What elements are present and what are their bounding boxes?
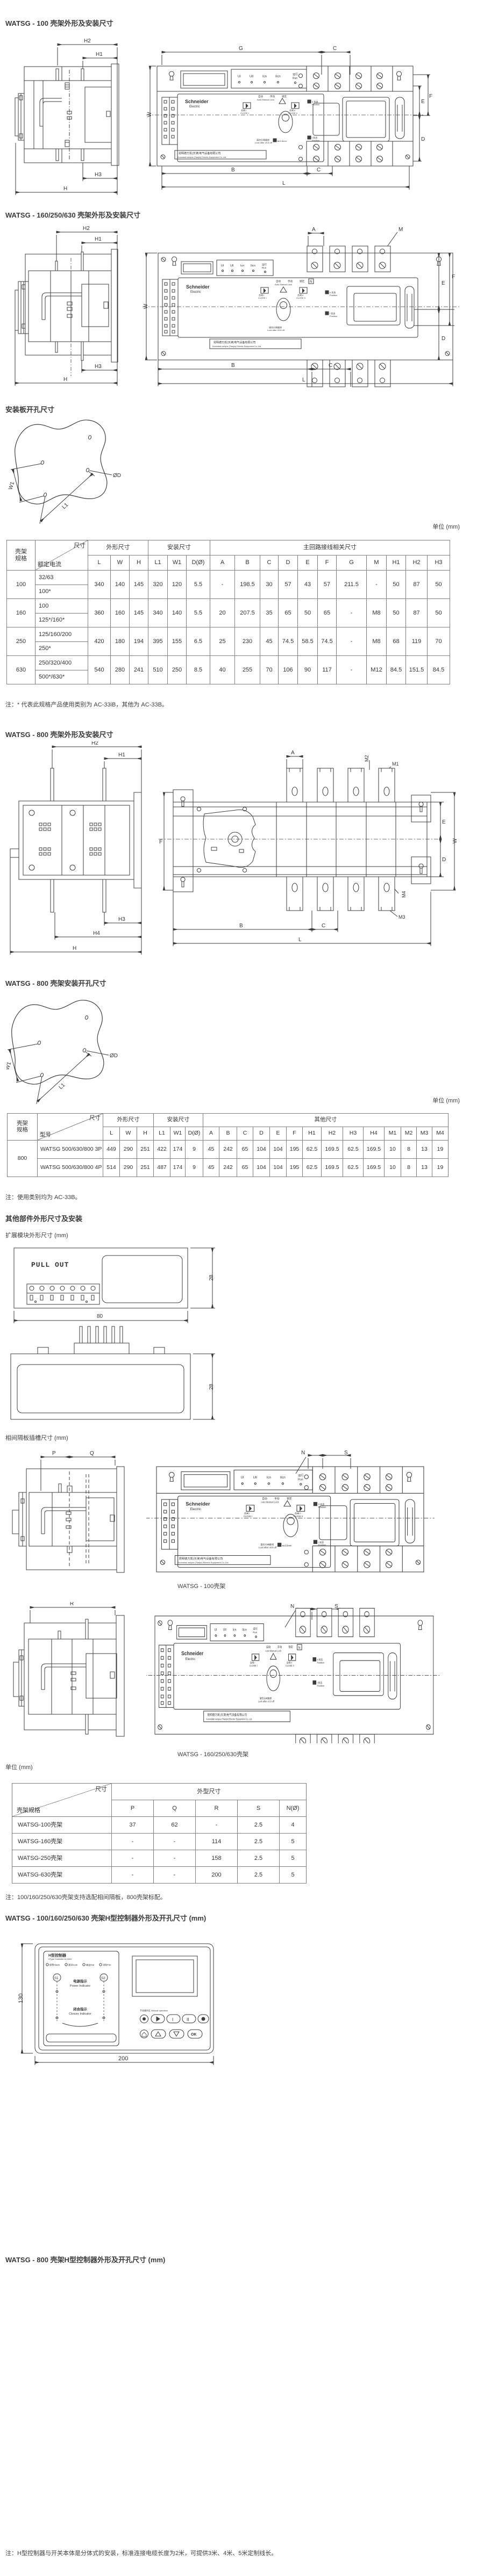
svg-text:L: L (302, 377, 305, 383)
svg-text:C: C (322, 923, 325, 929)
svg-text:H2: H2 (83, 226, 90, 232)
svg-text:CLOSE I: CLOSE I (258, 297, 267, 299)
svg-text:Lock after ≥0.8 off: Lock after ≥0.8 off (267, 329, 285, 331)
svg-text:HType Controller AC400V: HType Controller AC400V (48, 1958, 72, 1960)
svg-text:H2: H2 (91, 741, 98, 746)
svg-text:Icn: Icn (240, 264, 244, 268)
svg-text:H: H (63, 186, 67, 192)
svg-text:E: E (442, 280, 445, 286)
svg-text:ØD: ØD (113, 473, 121, 479)
svg-text:Closure Indicator: Closure Indicator (69, 2012, 91, 2016)
svg-text:CLOSE I: CLOSE I (240, 112, 249, 114)
svg-text:Q: Q (90, 1451, 94, 1456)
svg-text:H型控制器: H型控制器 (48, 1953, 67, 1958)
svg-text:H: H (73, 946, 76, 951)
svg-text:运行: 运行 (262, 263, 267, 266)
svg-text:28: 28 (209, 1274, 215, 1281)
svg-text:Kunmdwk weiyua (Tianjin) Elect: Kunmdwk weiyua (Tianjin) Electric Equipm… (212, 345, 261, 348)
svg-text:W1: W1 (8, 481, 16, 490)
svg-text:自动: 自动 (258, 95, 263, 98)
svg-text:Position: Position (330, 315, 337, 318)
svg-text:28: 28 (209, 1383, 215, 1390)
svg-text:通讯Com: 通讯Com (68, 1963, 78, 1967)
svg-text:H: H (63, 377, 67, 383)
svg-text:Icn: Icn (262, 75, 267, 78)
svg-text:运行: 运行 (293, 73, 298, 76)
svg-text:ØD: ØD (110, 1053, 118, 1059)
svg-text:A: A (291, 750, 295, 756)
svg-text:H2: H2 (84, 38, 91, 44)
svg-text:W: W (143, 304, 149, 309)
svg-text:IIcn: IIcn (275, 75, 281, 78)
svg-text:Electric: Electric (189, 105, 200, 109)
svg-text:昆明德万凯(天津)电气设备有限公司: 昆明德万凯(天津)电气设备有限公司 (179, 151, 220, 155)
svg-text:Position: Position (330, 294, 337, 297)
svg-text:E: E (421, 99, 425, 105)
svg-text:Ul: Ul (221, 264, 224, 268)
svg-text:M4: M4 (401, 891, 407, 898)
svg-text:H4: H4 (93, 930, 100, 936)
svg-text:Run: Run (293, 77, 297, 80)
svg-text:Schneider: Schneider (186, 284, 210, 290)
svg-text:手动: 手动 (270, 95, 275, 98)
svg-text:S: S (344, 1450, 348, 1456)
svg-text:闭合指示: 闭合指示 (73, 2007, 88, 2011)
svg-text:Ul: Ul (238, 75, 241, 78)
svg-text:L: L (282, 181, 286, 186)
svg-text:Kunmdwk weiyua (Tianjin) Elect: Kunmdwk weiyua (Tianjin) Electric Equipm… (177, 156, 226, 158)
svg-text:Ull: Ull (250, 75, 253, 78)
svg-text:PULL OUT: PULL OUT (31, 1261, 69, 1269)
svg-text:M1: M1 (392, 761, 399, 767)
svg-text:M: M (398, 227, 403, 233)
svg-text:S: S (334, 1604, 338, 1610)
svg-text:CLOSE II: CLOSE II (296, 297, 305, 299)
svg-text:200: 200 (118, 2055, 128, 2062)
svg-text:W: W (452, 838, 458, 843)
svg-text:输出Out: 输出Out (86, 1963, 95, 1967)
svg-text:D: D (421, 136, 425, 142)
svg-text:S1: S1 (54, 1977, 59, 1980)
svg-text:自动: 自动 (276, 279, 281, 283)
svg-text:F: F (159, 839, 162, 845)
svg-text:R: R (70, 1602, 74, 1607)
svg-text:手动操作区 Manual operation: 手动操作区 Manual operation (140, 2009, 168, 2012)
svg-text:II: II (187, 2017, 189, 2022)
svg-text:W1: W1 (6, 1061, 12, 1071)
svg-text:M2: M2 (364, 755, 369, 762)
svg-text:N: N (301, 1450, 305, 1456)
svg-text:Ull: Ull (230, 264, 233, 268)
svg-text:Electric: Electric (190, 291, 201, 294)
svg-text:Schneider: Schneider (185, 99, 209, 104)
svg-text:Auto Manual Lock: Auto Manual Lock (257, 98, 274, 101)
svg-text:消防Fire: 消防Fire (103, 1963, 111, 1967)
svg-text:L1: L1 (58, 1082, 67, 1091)
svg-text:B: B (231, 167, 235, 173)
svg-text:C: C (317, 167, 321, 173)
svg-text:●≥0.8mm: ●≥0.8mm (277, 140, 287, 142)
svg-text:H3: H3 (95, 364, 102, 370)
svg-text:D: D (442, 857, 446, 863)
svg-text:OK: OK (191, 2033, 197, 2037)
svg-text:昆明德万凯(天津)电气设备有限公司: 昆明德万凯(天津)电气设备有限公司 (213, 341, 255, 344)
svg-text:D: D (442, 336, 445, 342)
svg-text:130: 130 (18, 1994, 24, 2003)
svg-text:F: F (429, 93, 432, 99)
svg-text:F: F (452, 274, 455, 280)
svg-text:锁定: 锁定 (300, 279, 304, 283)
svg-text:N: N (310, 280, 312, 284)
svg-text:H3: H3 (118, 917, 125, 922)
svg-text:B: B (231, 363, 235, 369)
svg-text:L1: L1 (61, 502, 70, 510)
svg-text:Auto Manual Lock: Auto Manual Lock (275, 283, 292, 286)
svg-text:报警Alarm: 报警Alarm (49, 1963, 60, 1967)
svg-text:P: P (52, 1451, 56, 1456)
svg-text:G: G (239, 46, 243, 52)
svg-text:I: I (172, 2017, 173, 2022)
svg-text:Position: Position (312, 139, 319, 142)
svg-text:Power Indicator: Power Indicator (70, 1985, 90, 1988)
svg-text:锁定: 锁定 (282, 95, 287, 98)
svg-text:H1: H1 (96, 52, 103, 57)
svg-text:手动: 手动 (288, 279, 293, 283)
svg-text:Run: Run (262, 266, 267, 269)
svg-text:C: C (333, 46, 337, 52)
svg-text:H1: H1 (95, 236, 102, 242)
svg-text:H1: H1 (118, 752, 125, 758)
svg-text:S2: S2 (101, 1977, 105, 1980)
svg-text:H3: H3 (95, 172, 102, 178)
svg-text:L: L (298, 937, 302, 943)
svg-text:Lock after ≥0.8 off: Lock after ≥0.8 off (255, 141, 273, 144)
svg-text:A: A (312, 227, 316, 233)
svg-text:C: C (329, 363, 332, 369)
svg-text:电源指示: 电源指示 (73, 1979, 88, 1983)
svg-text:B: B (239, 923, 243, 929)
svg-text:E: E (442, 819, 446, 825)
svg-text:Position: Position (312, 103, 319, 106)
svg-text:M3: M3 (398, 914, 405, 920)
svg-text:IIcn: IIcn (251, 264, 255, 268)
svg-text:80: 80 (97, 1314, 103, 1319)
svg-text:N: N (290, 1604, 294, 1610)
svg-text:W: W (147, 112, 153, 117)
